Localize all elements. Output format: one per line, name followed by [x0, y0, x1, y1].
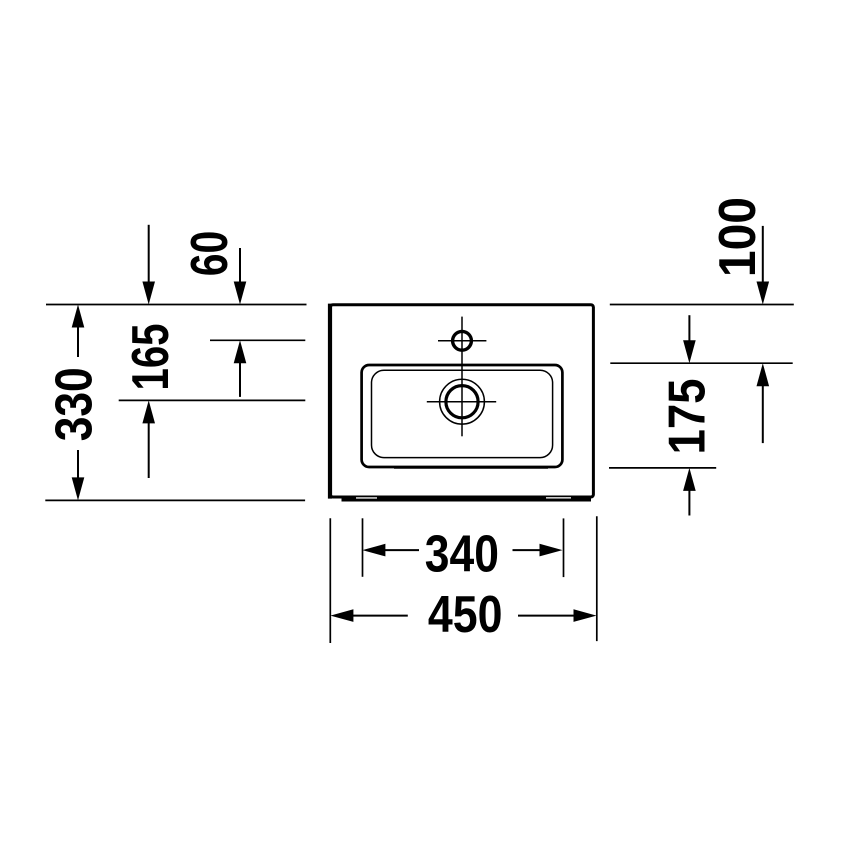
svg-text:100: 100 — [709, 197, 767, 277]
svg-text:450: 450 — [428, 586, 503, 644]
svg-text:175: 175 — [659, 379, 717, 455]
svg-text:330: 330 — [46, 367, 104, 441]
svg-text:60: 60 — [181, 231, 239, 277]
svg-text:340: 340 — [425, 526, 499, 584]
svg-text:165: 165 — [122, 324, 180, 391]
